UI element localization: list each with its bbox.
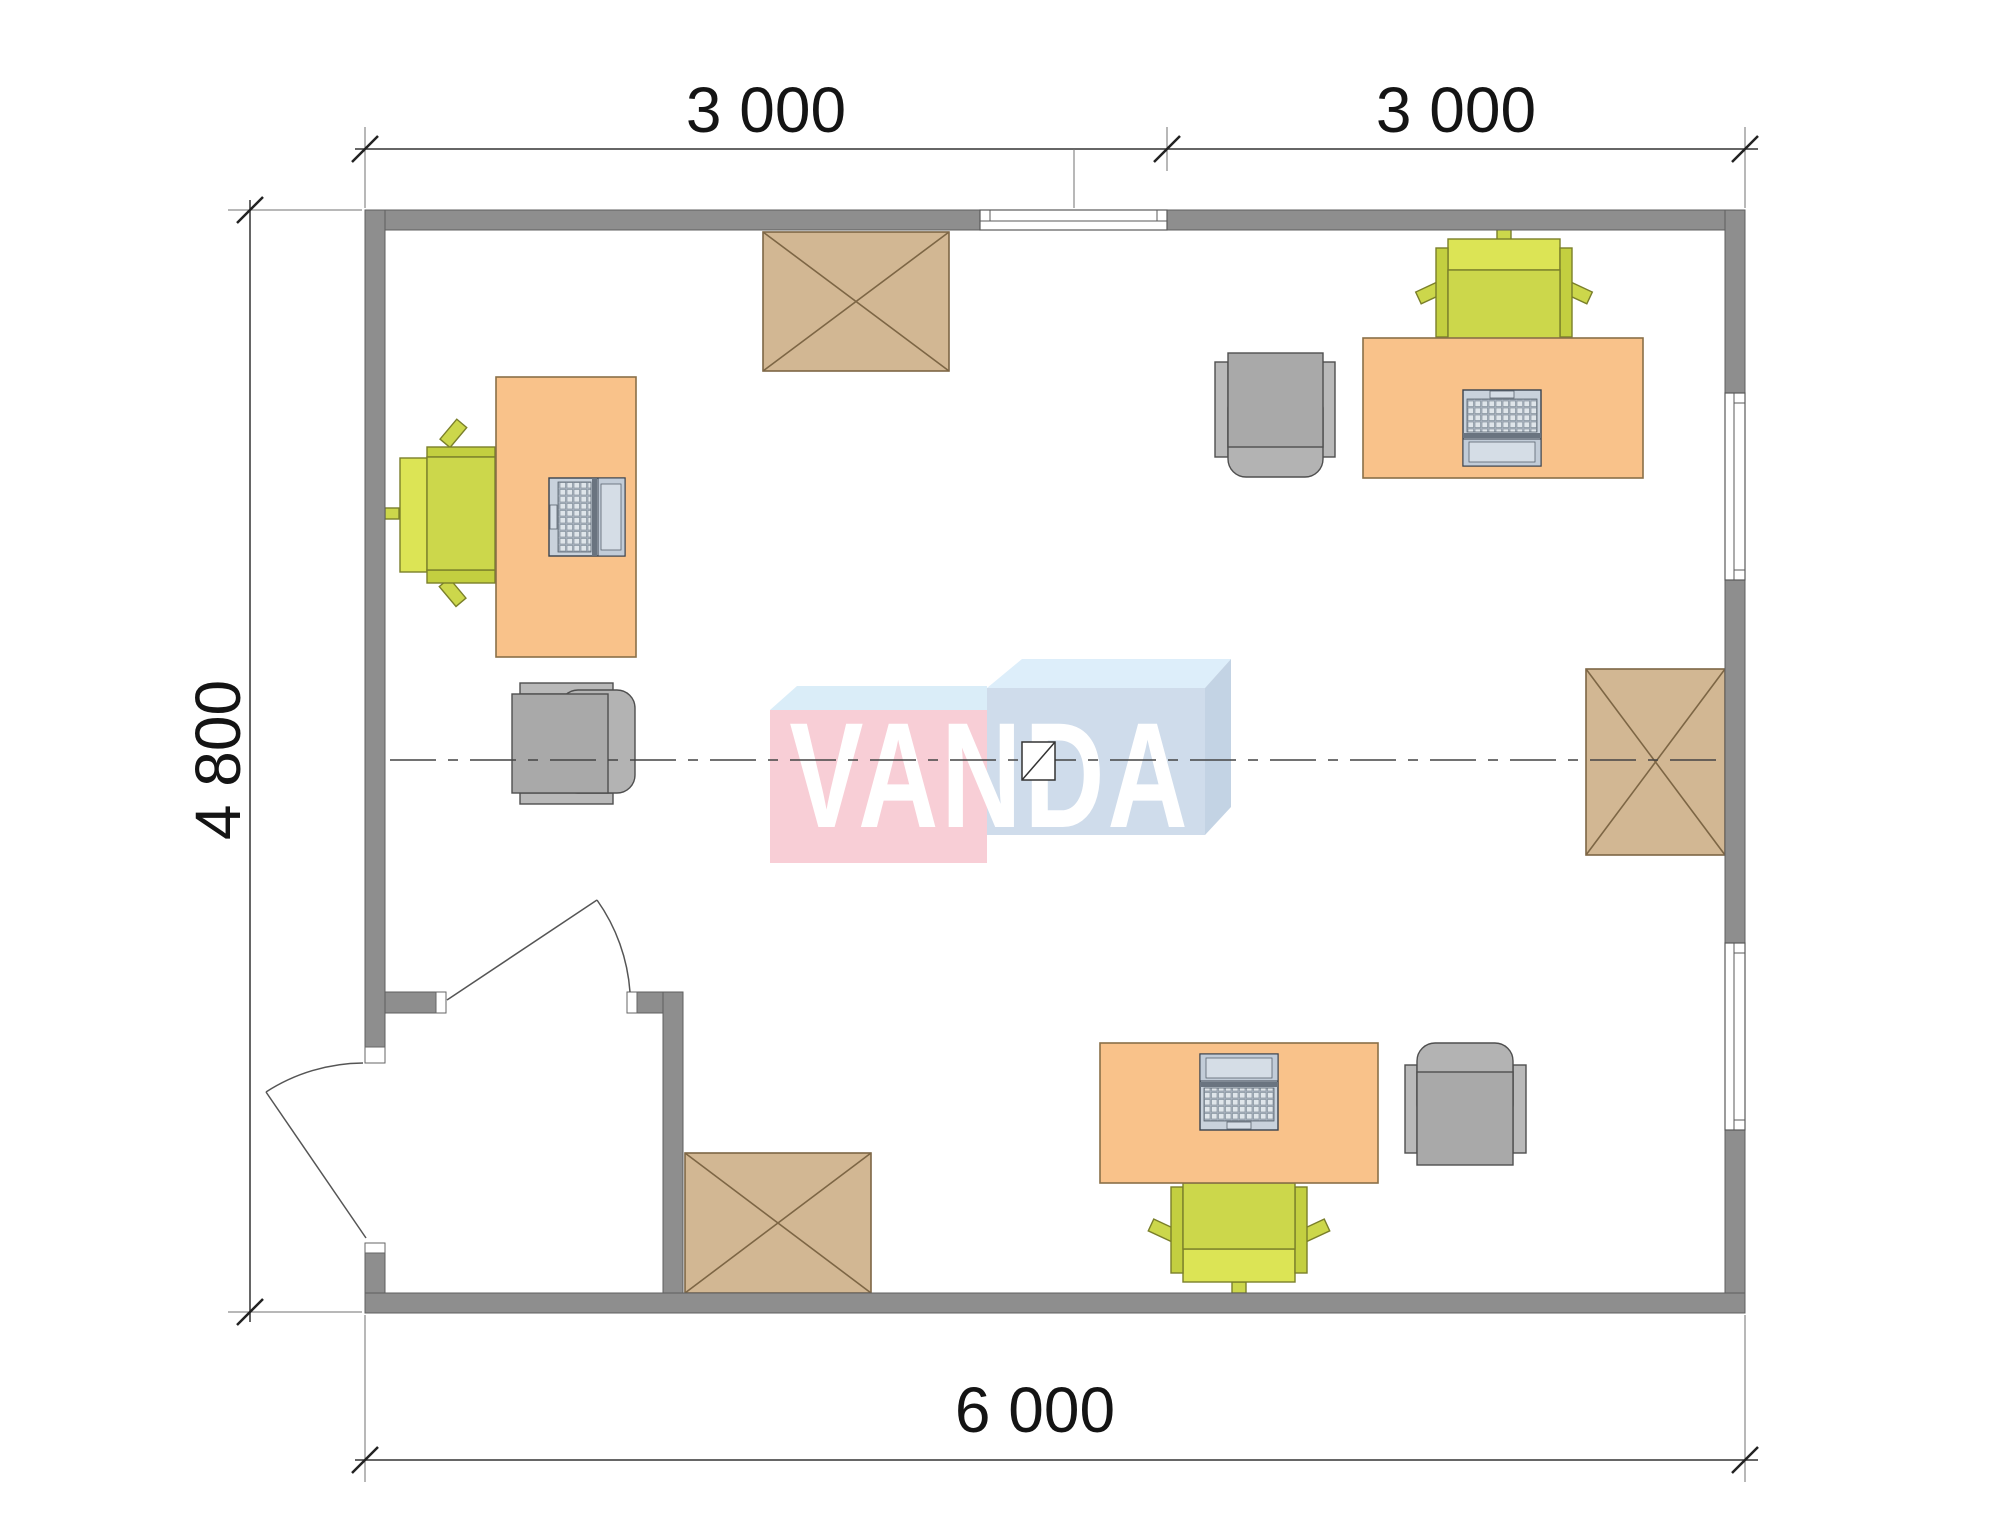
armchair-icon	[512, 683, 635, 804]
floor-plan-page: VANDA	[0, 0, 2000, 1520]
armchair-icon	[1215, 353, 1335, 477]
armchair-icon	[1405, 1043, 1526, 1165]
vanda-watermark-logo: VANDA	[770, 659, 1231, 863]
floor-plan-drawing: VANDA	[0, 0, 2000, 1520]
cabinet-crossed-icon	[1586, 669, 1725, 855]
center-marker-icon	[1022, 742, 1055, 780]
dimension-label-left: 4 800	[182, 680, 254, 840]
vanda-logo-text: VANDA	[789, 692, 1190, 859]
laptop-icon	[549, 478, 625, 556]
laptop-icon	[1463, 390, 1541, 466]
dimension-label-bottom: 6 000	[955, 1374, 1115, 1446]
window-icon	[980, 210, 1167, 230]
dimension-label-top-left: 3 000	[686, 74, 846, 146]
laptop-icon	[1200, 1054, 1278, 1130]
cabinet-crossed-icon	[763, 232, 949, 371]
window-icon	[1725, 943, 1745, 1130]
window-icon	[1725, 393, 1745, 580]
dimension-label-top-right: 3 000	[1376, 74, 1536, 146]
cabinet-crossed-icon	[685, 1153, 871, 1293]
